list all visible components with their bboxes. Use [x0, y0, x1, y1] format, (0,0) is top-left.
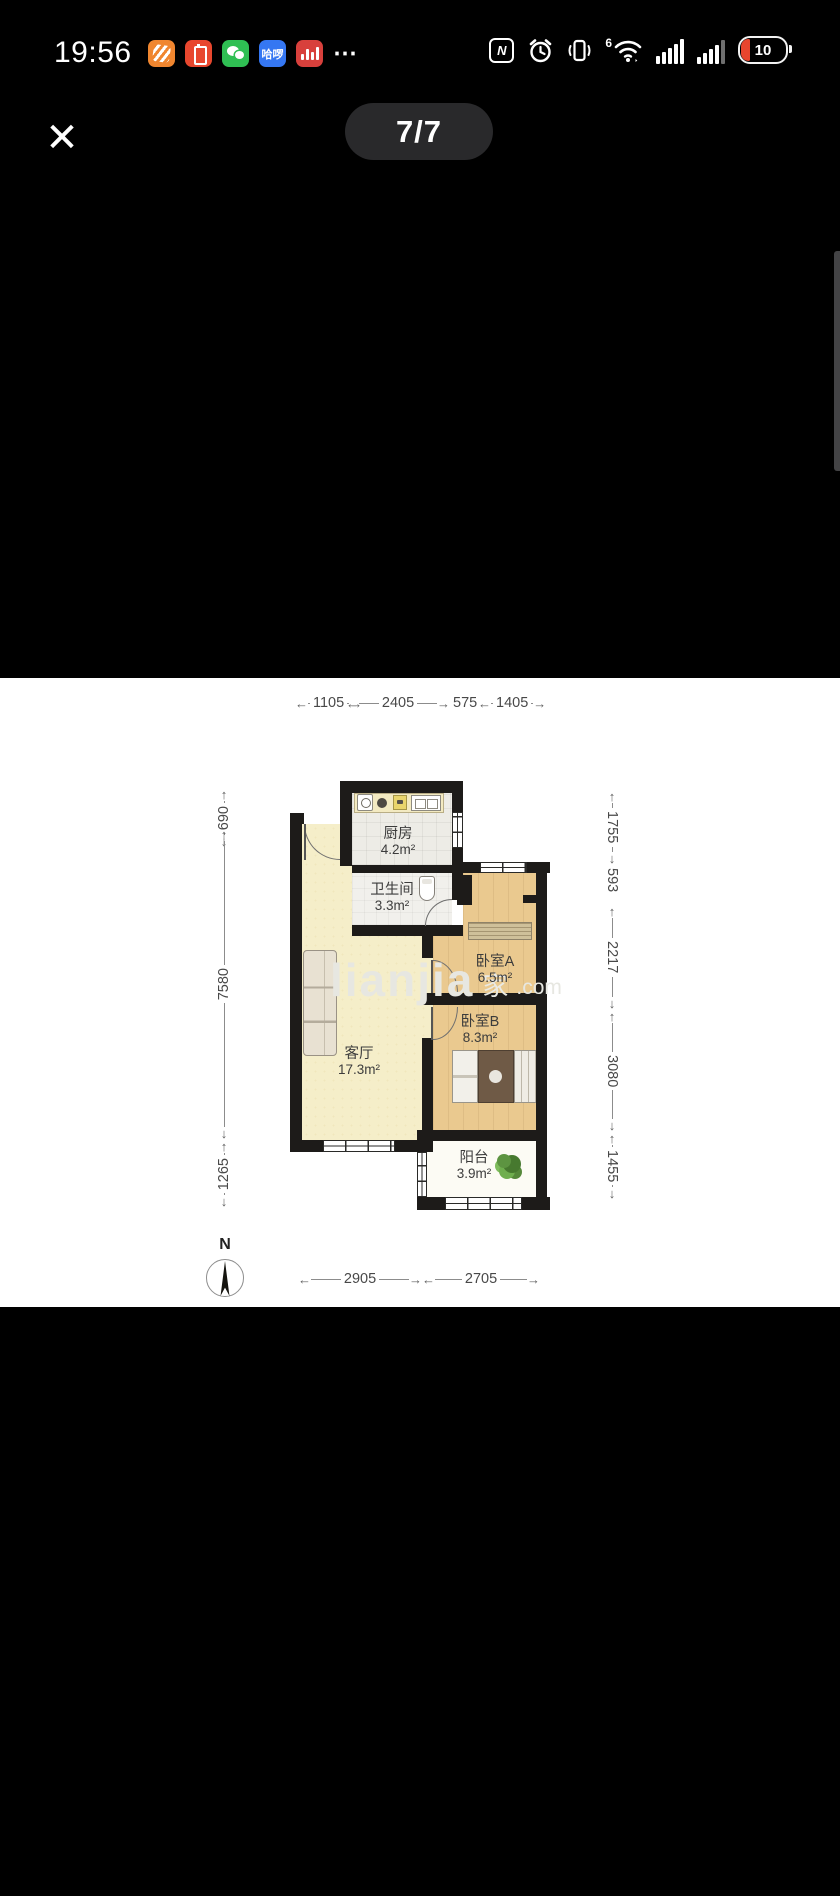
wall — [290, 1140, 323, 1152]
wall — [523, 895, 536, 903]
room-label-bedroom-a: 卧室A 6.5m² — [476, 954, 515, 986]
living-room-window — [323, 1140, 395, 1152]
scroll-indicator — [834, 251, 840, 471]
balcony-side-window — [417, 1152, 427, 1197]
keep-app-icon — [148, 40, 175, 67]
dimension-right: ↑1755↓ 593 ↑2217↓ ↑3080↓ ↑1455↓ — [603, 790, 621, 1195]
signal-strength-icon-sim2 — [697, 40, 725, 64]
wall — [452, 793, 463, 812]
wall — [417, 1130, 536, 1141]
wall — [417, 1197, 445, 1210]
vibrate-icon — [567, 37, 592, 64]
battery-app-icon — [185, 40, 212, 67]
wall — [536, 862, 547, 1210]
washing-machine — [357, 794, 373, 811]
balcony-window — [445, 1197, 522, 1210]
close-button[interactable]: ✕ — [36, 112, 88, 164]
stove-pot — [377, 798, 387, 808]
room-label-living: 客厅 17.3m² — [338, 1046, 380, 1078]
dimension-top: ←1105→ ←2405→ 575 ←1405→ — [295, 695, 542, 711]
north-label: N — [211, 1236, 239, 1254]
close-icon: ✕ — [45, 115, 79, 161]
dresser — [468, 922, 532, 940]
wifi-generation-label: 6 — [605, 38, 612, 48]
clock-time: 19:56 — [54, 36, 132, 70]
notification-app-icons: 哈啰 ⋯ — [148, 40, 359, 67]
floor-plan-image[interactable]: lianjia 家 .com — [0, 678, 840, 1307]
toilet — [419, 876, 435, 901]
wall — [352, 925, 463, 936]
media-app-icon — [296, 40, 323, 67]
battery-nub — [789, 45, 792, 53]
room-label-bedroom-b: 卧室B 8.3m² — [461, 1014, 500, 1046]
wall — [452, 848, 463, 873]
wall — [340, 793, 352, 866]
bedroom-a-window — [480, 862, 527, 873]
more-notifications-icon: ⋯ — [333, 40, 359, 67]
image-counter-badge: 7/7 — [345, 103, 493, 160]
status-icons: N 6 10 — [489, 36, 788, 64]
wall — [417, 1141, 427, 1152]
wall — [463, 862, 480, 873]
potted-plant — [497, 1154, 511, 1168]
alarm-clock-icon — [527, 37, 554, 64]
wifi-icon: 6 — [605, 38, 643, 63]
wechat-app-icon — [222, 40, 249, 67]
battery-fill — [741, 39, 750, 61]
room-label-kitchen: 厨房 4.2m² — [381, 826, 416, 858]
watermark: lianjia 家 .com — [330, 960, 562, 1000]
double-sink — [411, 795, 441, 811]
status-bar: 19:56 哈啰 ⋯ N 6 — [0, 0, 840, 84]
room-label-bathroom: 卫生间 3.3m² — [370, 882, 414, 914]
wall — [352, 865, 452, 873]
dimension-bottom: ←2905→ ←2705→ — [298, 1271, 540, 1287]
battery-percent: 10 — [755, 42, 772, 59]
wall — [522, 1197, 550, 1210]
wall — [422, 1038, 433, 1140]
wall — [457, 875, 472, 905]
dimension-left: ↑690↓ ↑7580↓ ↑1265↓ — [215, 788, 233, 1198]
hello-app-icon: 哈啰 — [259, 40, 286, 67]
battery-indicator: 10 — [738, 36, 788, 64]
bedroom-b-door-leaf — [431, 1007, 433, 1040]
signal-strength-icon-sim1 — [656, 39, 684, 64]
wall — [395, 1140, 433, 1152]
stove — [393, 795, 407, 810]
nfc-icon: N — [489, 38, 514, 63]
room-label-balcony: 阳台 3.9m² — [457, 1150, 492, 1182]
wall — [290, 813, 302, 1152]
entry-door-leaf — [304, 824, 306, 860]
bed — [452, 1050, 540, 1103]
wall — [340, 781, 463, 793]
kitchen-window — [452, 812, 463, 848]
